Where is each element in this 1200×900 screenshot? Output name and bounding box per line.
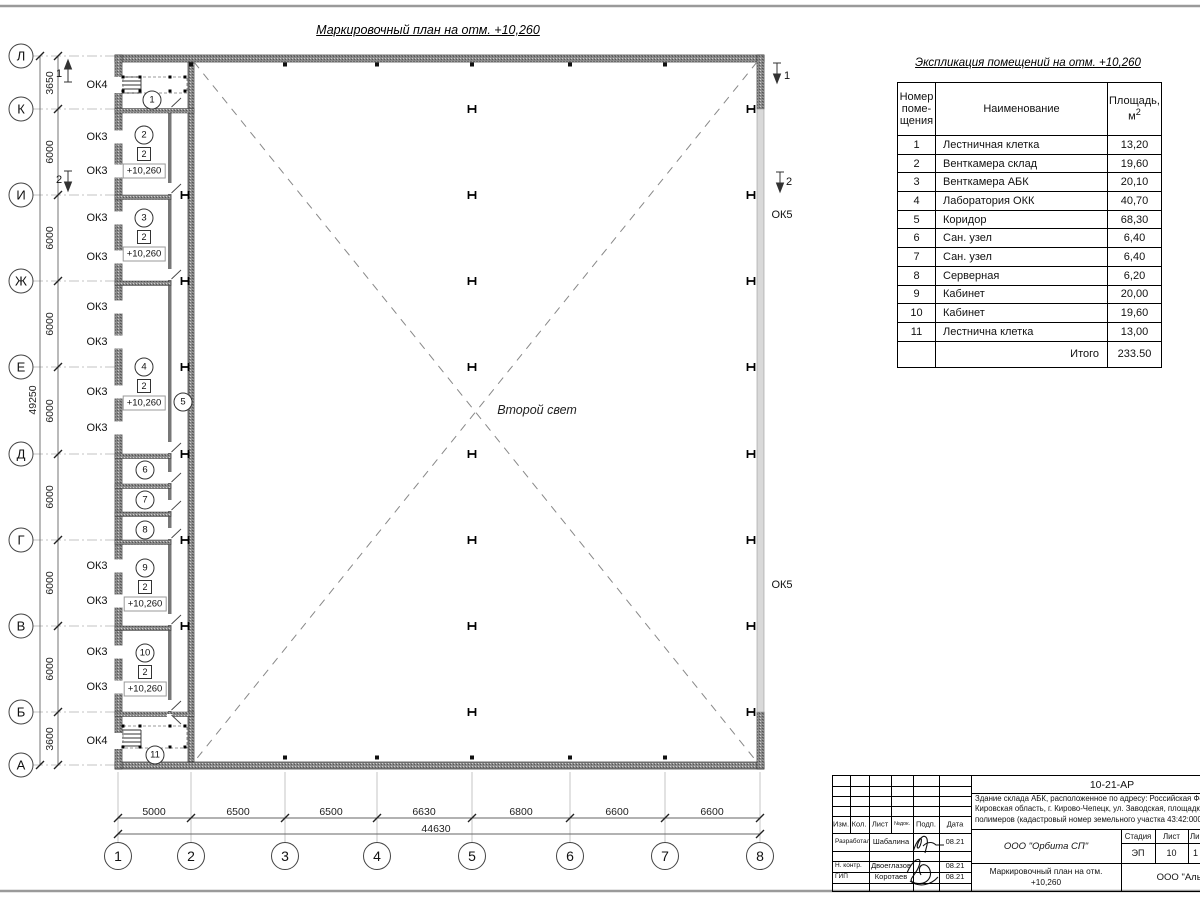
table-row: 3 Венткамера АБК 20,10 [898,173,1162,192]
table-row: 8 Серверная 6,20 [898,266,1162,285]
table-row: 2 Венткамера склад 19,60 [898,154,1162,173]
room-number-cell: 3 [898,173,936,192]
sheet-value: 10 [1155,843,1188,863]
table-row: 7 Сан. узел 6,40 [898,248,1162,267]
role-label: Разработал [835,838,869,845]
table-row: 11 Лестнична клетка 13,00 [898,322,1162,341]
corridor-hall-wall [188,62,194,762]
room-area-cell: 6,20 [1108,266,1162,285]
stair-flight-top [122,77,187,93]
description-line: Здание склада АБК, расположенное по адре… [975,794,1200,804]
sheet-label: Лист [1155,829,1188,843]
subtitle-line-2: +10,260 [1031,877,1061,888]
explication-table: Номер поме- щения Наименование Площадь, … [897,82,1162,368]
signature-date: 08.21 [939,861,971,870]
room-area-cell: 19,60 [1108,304,1162,323]
document-number: 10-21-АР [971,777,1200,792]
wall-column-marks [189,63,667,760]
room-number-cell: 1 [898,136,936,155]
room-number-cell: 6 [898,229,936,248]
room-name-cell: Лестничная клетка [936,136,1108,155]
room-name-cell: Лестнична клетка [936,322,1108,341]
organization-1: ООО "Орбита СП" [971,829,1121,863]
room-area-cell: 68,30 [1108,210,1162,229]
organization-2: ООО "Альяно [1121,863,1200,891]
room-number-cell: 5 [898,210,936,229]
sig-header-label: Подп. [916,820,936,829]
sig-header-label: Дата [947,820,964,829]
table-row: 1 Лестничная клетка 13,20 [898,136,1162,155]
outer-walls [115,55,764,769]
room-area-cell: 20,00 [1108,285,1162,304]
room-name-cell: Сан. узел [936,248,1108,267]
table-row: 5 Коридор 68,30 [898,210,1162,229]
total-empty-cell [898,341,936,367]
signature-date: 08.21 [939,872,971,881]
total-value: 233.50 [1108,341,1162,367]
table-row: 6 Сан. узел 6,40 [898,229,1162,248]
title-block: Изм.Кол.Лист№док.Подп.Дата Разработал Ша… [832,775,1200,892]
subtitle-line-1: Маркировочный план на отм. [990,866,1103,877]
room-name-cell: Коридор [936,210,1108,229]
room-number-cell: 8 [898,266,936,285]
stage-label: Стадия [1121,829,1155,843]
window-band-ok5 [757,109,764,712]
total-label: Итого [936,341,1108,367]
room-number-cell: 11 [898,322,936,341]
sig-header-label: Кол. [852,820,867,829]
room-number-cell: 4 [898,192,936,211]
room-area-cell: 13,00 [1108,322,1162,341]
room-area-cell: 13,20 [1108,136,1162,155]
signature-date: 08.21 [939,837,971,846]
room-number-cell: 2 [898,154,936,173]
stair-column-dots [122,76,187,749]
role-label: ГИП [835,873,869,880]
room-name-cell: Лаборатория ОКК [936,192,1108,211]
table-header-row: Номер поме- щения Наименование Площадь, … [898,83,1162,136]
room-name-cell: Венткамера АБК [936,173,1108,192]
stair-flight-bottom [122,726,187,748]
dimension-lines [40,56,760,834]
sheet-subtitle: Маркировочный план на отм. +10,260 [971,863,1121,891]
table-row: 4 Лаборатория ОКК 40,70 [898,192,1162,211]
sheets-label: Ли [1190,829,1200,843]
stage-value: ЭП [1121,843,1155,863]
signature-row: ГИП Коротаев 08.21 [833,872,971,882]
room-area-cell: 40,70 [1108,192,1162,211]
room-name-cell: Кабинет [936,304,1108,323]
header-area: Площадь, м2 [1108,83,1162,136]
second-light-cross [194,62,757,762]
room-area-cell: 6,40 [1108,229,1162,248]
column-h-symbols [182,105,755,716]
sig-header-label: Изм. [833,820,849,829]
room-area-cell: 6,40 [1108,248,1162,267]
room-number-cell: 7 [898,248,936,267]
project-description: Здание склада АБК, расположенное по адре… [975,794,1200,825]
description-line: Кировская область, г. Кирово-Чепецк, ул.… [975,804,1200,814]
sig-header-label: №док. [894,821,910,827]
drawing-sheet: { "sheet": { "plan_title": "Маркировочны… [0,0,1200,900]
signature-row: Разработал Шабалина 08.21 [833,837,971,847]
table-row: 9 Кабинет 20,00 [898,285,1162,304]
dimension-ticks [36,52,764,838]
room-area-cell: 19,60 [1108,154,1162,173]
sig-header-label: Лист [872,820,888,829]
person-name: Шабалина [869,837,913,846]
room-area-cell: 20,10 [1108,173,1162,192]
role-label: Н. контр. [835,862,869,869]
table-body: 1 Лестничная клетка 13,20 2 Венткамера с… [898,136,1162,342]
person-name: Двоеглазов [869,861,913,870]
room-name-cell: Серверная [936,266,1108,285]
row-axis-lines [33,56,115,765]
description-line: полимеров (кадастровый номер земельного … [975,815,1200,825]
room-number-cell: 9 [898,285,936,304]
header-name: Наименование [936,83,1108,136]
door-leaves [172,98,182,724]
section-cut-marks [64,60,784,192]
person-name: Коротаев [869,872,913,881]
table-row: 10 Кабинет 19,60 [898,304,1162,323]
col-extension-lines [118,772,760,846]
room-name-cell: Венткамера склад [936,154,1108,173]
table-total-row: Итого 233.50 [898,341,1162,367]
sheets-value: 1 [1193,843,1200,863]
header-room-number: Номер поме- щения [898,83,936,136]
room-number-cell: 10 [898,304,936,323]
room-name-cell: Сан. узел [936,229,1108,248]
room-name-cell: Кабинет [936,285,1108,304]
signature-row: Н. контр. Двоеглазов 08.21 [833,861,971,871]
